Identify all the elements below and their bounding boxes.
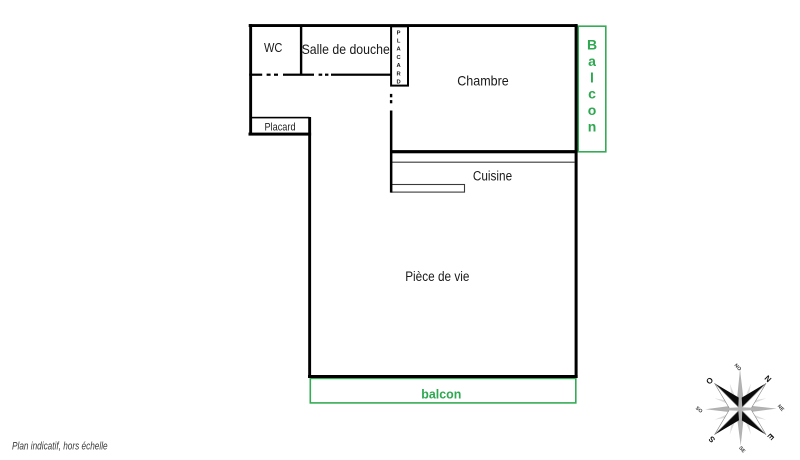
svg-text:Chambre: Chambre	[457, 72, 509, 88]
svg-text:Pièce de vie: Pièce de vie	[405, 269, 469, 284]
svg-text:Cuisine: Cuisine	[473, 168, 512, 183]
svg-text:Balcon: Balcon	[587, 37, 597, 135]
svg-text:Placard: Placard	[264, 121, 295, 133]
svg-text:WC: WC	[264, 41, 282, 55]
svg-text:Salle de douche: Salle de douche	[302, 41, 390, 57]
svg-text:Plan indicatif, hors échelle: Plan indicatif, hors échelle	[12, 441, 108, 453]
svg-text:balcon: balcon	[421, 386, 461, 401]
